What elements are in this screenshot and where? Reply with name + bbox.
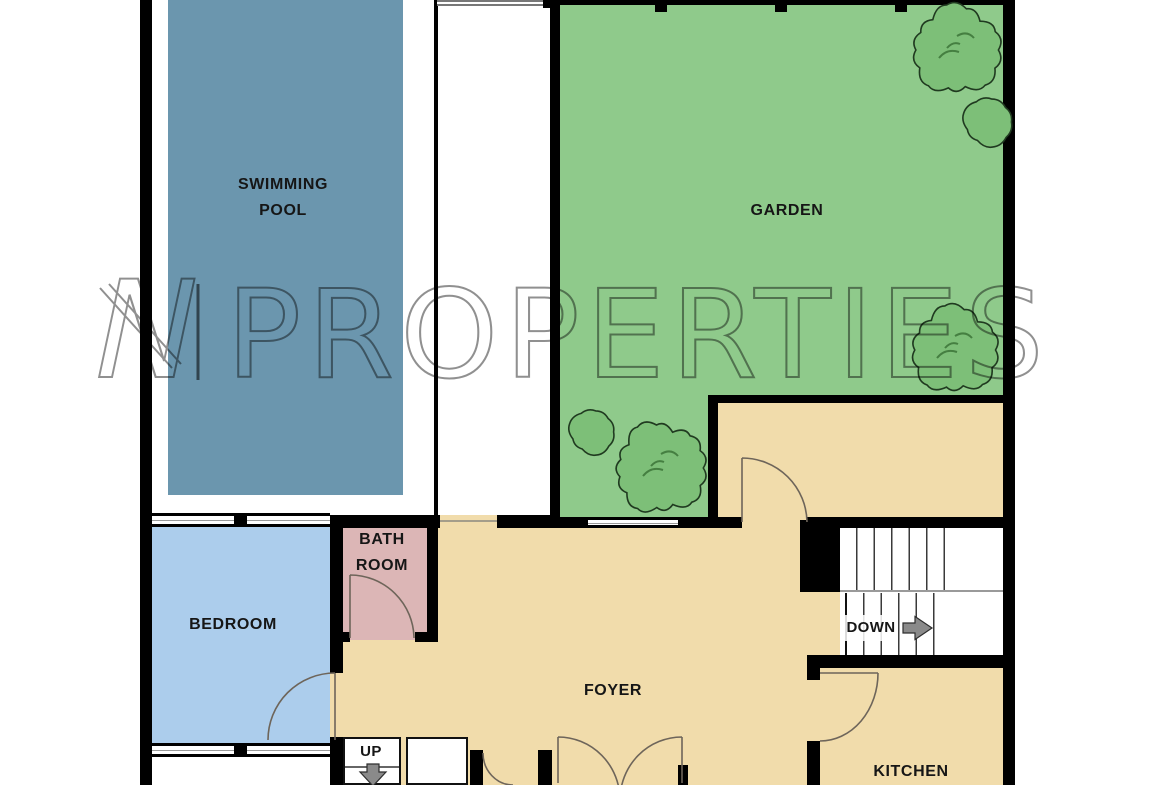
wall-tick — [895, 0, 907, 12]
wall-bathroom-bottom-stub — [415, 632, 438, 642]
window-garden — [588, 517, 678, 528]
window-mullion — [234, 513, 247, 527]
wall-tick — [655, 0, 667, 12]
wall-entry-left-jamb — [538, 750, 552, 785]
wall-stairwell-bottom — [807, 655, 1003, 668]
bathroom-label-line2: ROOM — [356, 553, 408, 579]
room-pool — [168, 0, 403, 495]
wall-pool-right — [434, 0, 438, 516]
stairs-divider — [840, 590, 1003, 592]
wall-kitchen-left-lower — [807, 741, 820, 785]
swimming-pool-label-line1: SWIMMING — [238, 172, 328, 198]
garden-label: GARDEN — [751, 198, 824, 224]
window-corridor-top — [437, 0, 543, 6]
bedroom-label: BEDROOM — [189, 612, 277, 638]
doorway-patch — [330, 673, 343, 738]
wall-foyer-bottom — [470, 750, 483, 785]
wall-hall-bottom-left — [715, 517, 742, 528]
wall-entry-right-jamb — [678, 765, 688, 785]
kitchen-label: KITCHEN — [873, 759, 948, 785]
wall-hall-left — [708, 398, 718, 528]
wall-outer-left — [140, 0, 152, 785]
wall-tick — [543, 0, 553, 8]
wall-corridor-bottom — [497, 515, 553, 528]
wall-garden-left — [550, 0, 560, 528]
wall-tick — [775, 0, 787, 12]
window-mullion — [234, 743, 247, 757]
stairs-down-label: DOWN — [844, 615, 897, 641]
bathroom-label: BATH ROOM — [356, 527, 408, 579]
wall-kitchen-left-upper — [807, 664, 820, 680]
stairs-up-right-column — [406, 737, 468, 785]
foyer-label: FOYER — [584, 678, 642, 704]
wall-stairwell-left — [800, 520, 840, 592]
doorway-patch — [438, 515, 497, 528]
swimming-pool-label-line2: POOL — [238, 198, 328, 224]
room-garden-lower — [560, 398, 708, 518]
window-bedroom-top — [152, 513, 330, 527]
wall-bathroom-bottom-stub — [338, 632, 350, 642]
window-bedroom-bottom — [152, 743, 330, 757]
bathroom-label-line1: BATH — [356, 527, 408, 553]
stairs-up-label: UP — [360, 739, 382, 765]
wall-outer-right — [1003, 0, 1015, 785]
wall-bedroom-right — [330, 515, 343, 673]
wall-bathroom-right — [427, 515, 438, 642]
room-hall-garden-access — [718, 403, 1003, 517]
doorway-patch — [742, 517, 807, 528]
stairs-down-upper-flight — [840, 528, 947, 590]
wall-bedroom-right-corner — [330, 737, 343, 785]
wall-garden-bottom-left — [550, 517, 588, 528]
floor-plan: SWIMMING POOL GARDEN BEDROOM BATH ROOM F… — [0, 0, 1170, 785]
wall-garden-bottom-right — [678, 517, 710, 528]
swimming-pool-label: SWIMMING POOL — [238, 172, 328, 224]
window-glass-line — [588, 523, 678, 524]
wall-hall-top — [708, 395, 1003, 403]
